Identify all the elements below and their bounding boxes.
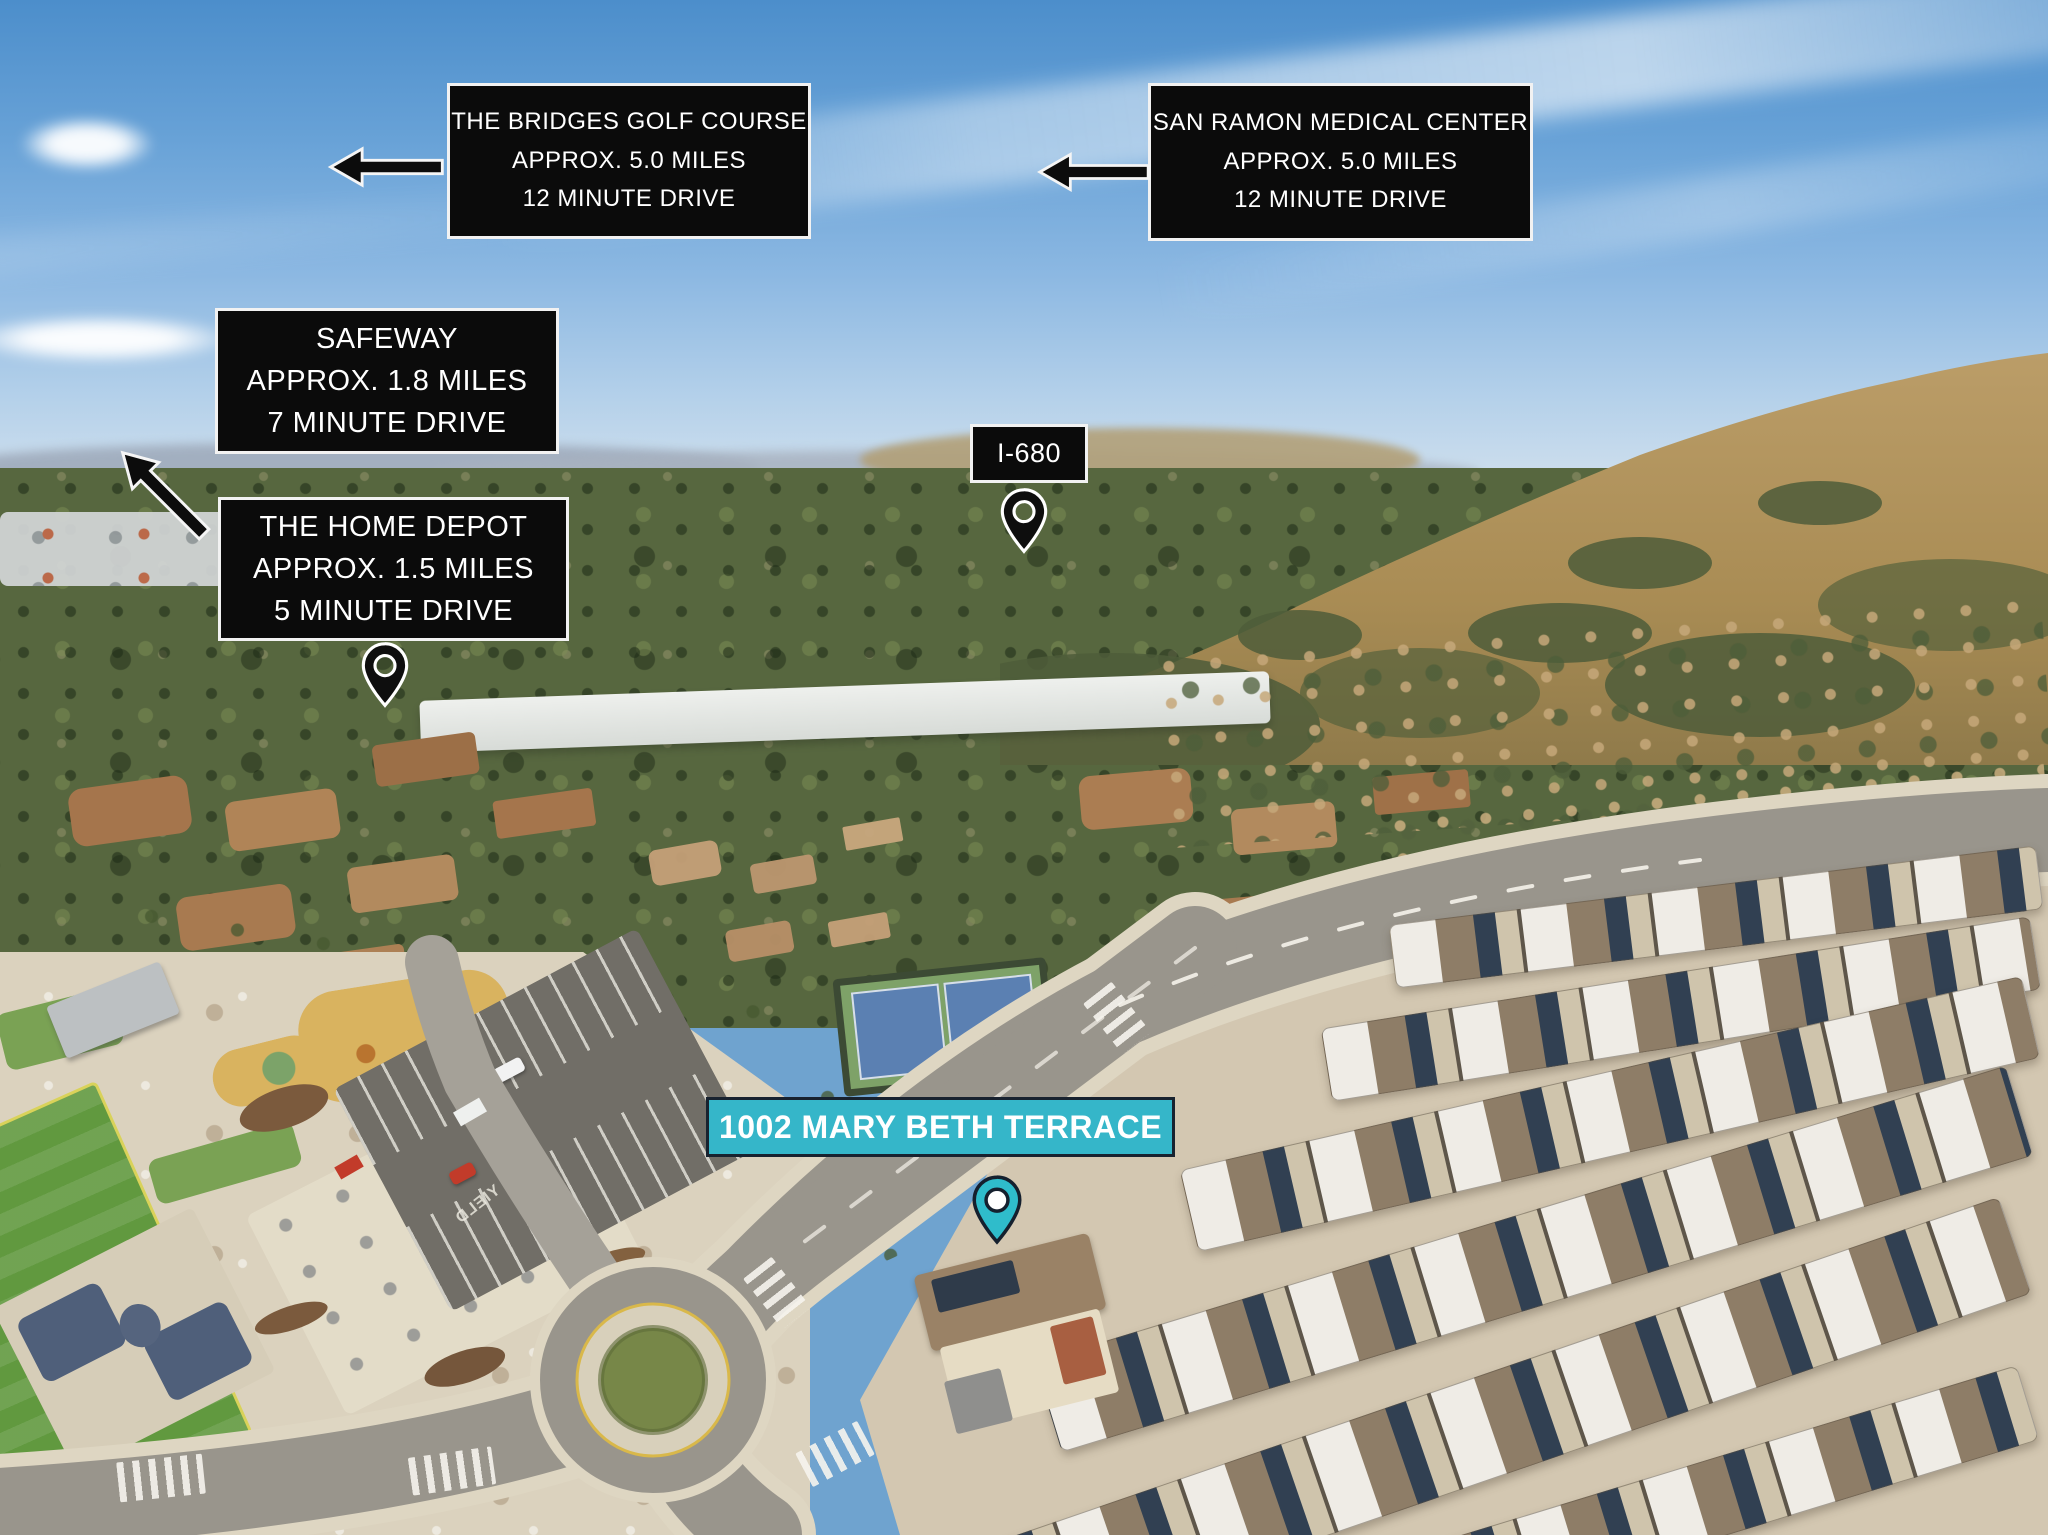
basketball-key [15, 1280, 129, 1384]
callout-safeway: SAFEWAY APPROX. 1.8 MILES 7 MINUTE DRIVE [215, 308, 559, 454]
callout-i680: I-680 [970, 424, 1088, 483]
tennis-court [943, 974, 1040, 1071]
callout-drive-time: 12 MINUTE DRIVE [450, 180, 808, 218]
map-pin-home-depot-icon [360, 640, 410, 710]
callout-drive-time: 12 MINUTE DRIVE [1151, 181, 1530, 219]
parked-car [493, 1056, 527, 1083]
callout-distance: APPROX. 5.0 MILES [1151, 143, 1530, 181]
callout-name: THE HOME DEPOT [221, 506, 566, 548]
aerial-photo-scene: YIELD YIELD THE BRIDGES GOLF COURSE APPR… [0, 0, 2048, 1535]
tennis-courts [832, 957, 1057, 1097]
tennis-court [850, 984, 947, 1081]
diagonal-arrow-icon [100, 437, 225, 549]
callout-name: I-680 [973, 440, 1085, 467]
parked-car [448, 1161, 478, 1186]
callout-distance: APPROX. 1.5 MILES [221, 548, 566, 590]
callout-medical-center: SAN RAMON MEDICAL CENTER APPROX. 5.0 MIL… [1148, 83, 1533, 241]
callout-home-depot: THE HOME DEPOT APPROX. 1.5 MILES 5 MINUT… [218, 497, 569, 641]
left-arrow-icon [327, 146, 445, 188]
cloud [22, 118, 152, 170]
left-arrow-icon [1037, 151, 1150, 193]
tennis-court-surface [840, 965, 1050, 1089]
map-pin-i680-icon [999, 487, 1049, 555]
callout-name: THE BRIDGES GOLF COURSE [450, 103, 808, 141]
callout-golf-course: THE BRIDGES GOLF COURSE APPROX. 5.0 MILE… [447, 83, 811, 239]
callout-drive-time: 7 MINUTE DRIVE [218, 402, 556, 444]
callout-distance: APPROX. 5.0 MILES [450, 142, 808, 180]
map-pin-property-icon [969, 1175, 1025, 1245]
property-address-banner: 1002 MARY BETH TERRACE [706, 1097, 1175, 1157]
callout-name: SAN RAMON MEDICAL CENTER [1151, 104, 1530, 142]
basketball-key [141, 1299, 255, 1403]
callout-drive-time: 5 MINUTE DRIVE [221, 590, 566, 632]
callout-name: SAFEWAY [218, 318, 556, 360]
callout-distance: APPROX. 1.8 MILES [218, 360, 556, 402]
